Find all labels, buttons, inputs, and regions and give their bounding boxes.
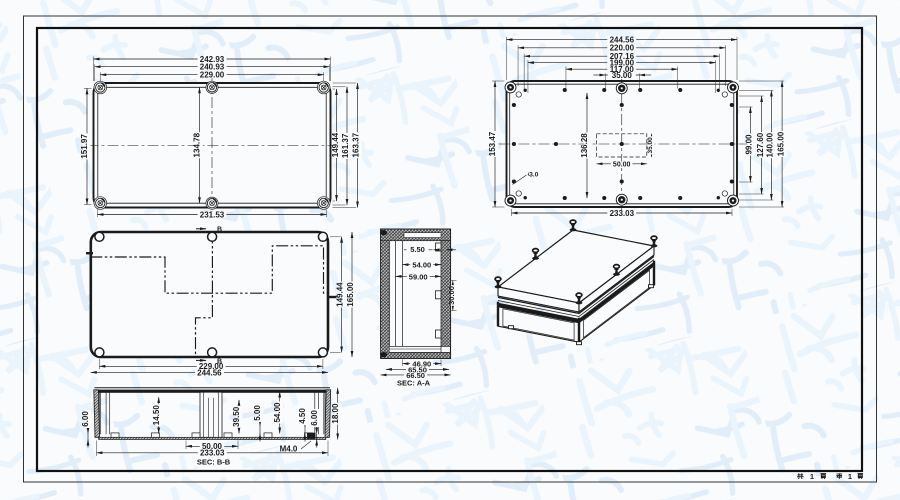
svg-text:35.00: 35.00	[647, 137, 654, 154]
svg-text:229.00: 229.00	[200, 71, 225, 80]
svg-text:1: 1	[810, 472, 814, 481]
svg-text:149.44: 149.44	[331, 132, 340, 157]
svg-text:151.97: 151.97	[80, 134, 89, 159]
svg-text:6.00: 6.00	[81, 411, 90, 427]
svg-text:5.00: 5.00	[253, 405, 262, 421]
svg-text:231.53: 231.53	[200, 210, 225, 219]
svg-text:B: B	[217, 226, 222, 233]
svg-text:165.00: 165.00	[346, 282, 355, 307]
svg-text:127.60: 127.60	[756, 132, 765, 157]
svg-text:163.37: 163.37	[352, 132, 361, 157]
svg-text:233.03: 233.03	[610, 209, 635, 218]
svg-text:233.03: 233.03	[200, 449, 225, 458]
svg-text:18.00: 18.00	[331, 403, 340, 424]
svg-text:6.00: 6.00	[310, 410, 319, 426]
svg-text:136.28: 136.28	[580, 133, 589, 158]
svg-text:5.50: 5.50	[410, 245, 425, 254]
svg-text:244.56: 244.56	[197, 368, 222, 377]
svg-text:1: 1	[848, 472, 852, 481]
svg-text:59.00: 59.00	[409, 272, 428, 281]
svg-text:149.44: 149.44	[336, 282, 345, 307]
svg-text:35.00: 35.00	[612, 71, 633, 80]
svg-text:140.00: 140.00	[766, 132, 775, 157]
svg-text:165.00: 165.00	[776, 131, 785, 156]
svg-text:39.50: 39.50	[232, 406, 241, 427]
svg-text:153.47: 153.47	[488, 131, 497, 156]
svg-text:50.00: 50.00	[613, 162, 631, 169]
svg-text:ʵ3.0: ʵ3.0	[528, 172, 539, 179]
svg-text:30.00: 30.00	[447, 286, 456, 305]
svg-text:4.50: 4.50	[298, 408, 307, 424]
svg-text:54.00: 54.00	[412, 261, 431, 270]
svg-text:SEC: A-A: SEC: A-A	[397, 379, 431, 388]
svg-text:M4.0: M4.0	[280, 445, 298, 454]
svg-text:54.00: 54.00	[273, 402, 282, 423]
svg-text:134.78: 134.78	[193, 132, 202, 157]
svg-text:161.37: 161.37	[341, 133, 350, 158]
svg-text:14.50: 14.50	[152, 405, 161, 426]
svg-text:SEC: B-B: SEC: B-B	[197, 458, 231, 467]
svg-text:99.00: 99.00	[745, 134, 754, 155]
